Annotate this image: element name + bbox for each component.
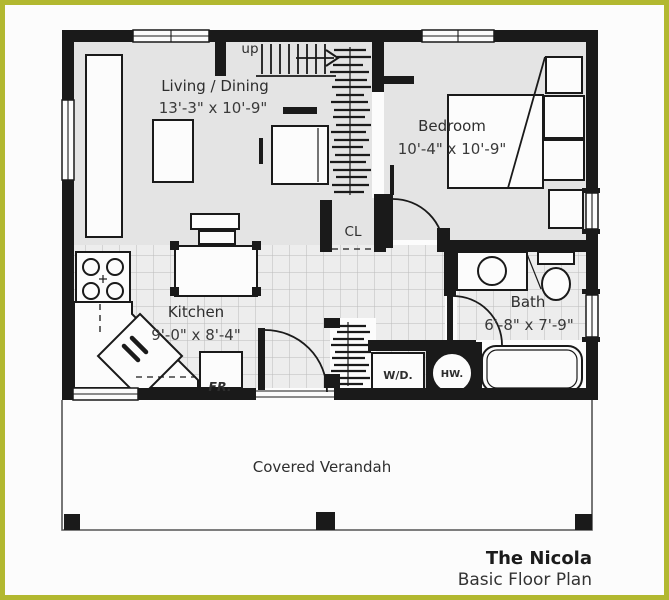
kitchen-label: Kitchen bbox=[168, 303, 224, 321]
bedroom-shelf bbox=[384, 76, 414, 84]
living-dining-dimensions: 13'-3" x 10'-9" bbox=[159, 99, 268, 117]
toilet-tank bbox=[538, 252, 574, 264]
verandah-post bbox=[316, 512, 335, 530]
toilet bbox=[542, 268, 570, 300]
washer-dryer-label: W/D. bbox=[383, 369, 412, 382]
bedroom-dimensions: 10'-4" x 10'-9" bbox=[398, 140, 507, 158]
wall-counter bbox=[86, 55, 122, 237]
burner-icon bbox=[83, 259, 99, 275]
floor-lamp bbox=[390, 165, 394, 195]
living-dining-label: Living / Dining bbox=[161, 77, 269, 95]
wall-shelf bbox=[283, 107, 317, 114]
closet-shelf bbox=[544, 96, 584, 138]
stair-wall bbox=[215, 42, 226, 76]
dining-chair bbox=[199, 231, 235, 244]
floor-plan-drawing: Living / Dining 13'-3" x 10'-9" Bedroom … bbox=[0, 0, 669, 600]
dining-table bbox=[175, 246, 257, 296]
hot-water-label: HW. bbox=[441, 369, 463, 380]
verandah-label: Covered Verandah bbox=[253, 458, 392, 476]
bathtub bbox=[482, 346, 582, 392]
plan-title: The Nicola bbox=[486, 548, 592, 569]
plan-subtitle: Basic Floor Plan bbox=[458, 570, 592, 590]
bedroom-wall bbox=[372, 42, 384, 92]
closet-wall-right bbox=[374, 194, 386, 252]
burner-icon bbox=[107, 283, 123, 299]
exterior-wall-left bbox=[62, 30, 74, 400]
verandah-post bbox=[64, 514, 80, 530]
bath-wall-left bbox=[444, 252, 456, 296]
closet-wall-left bbox=[320, 200, 332, 252]
bath-bedroom-wall bbox=[437, 240, 586, 252]
closet-shelf bbox=[546, 57, 582, 93]
cabinet bbox=[191, 214, 239, 229]
verandah-post bbox=[575, 514, 592, 530]
bedroom-label: Bedroom bbox=[418, 117, 486, 135]
closet-label: CL bbox=[345, 224, 362, 240]
bath-door bbox=[447, 294, 453, 346]
entry-door bbox=[258, 328, 265, 390]
framed-floor-plan-image: Living / Dining 13'-3" x 10'-9" Bedroom … bbox=[0, 0, 669, 600]
bath-dimensions: 6'-8" x 7'-9" bbox=[484, 316, 573, 334]
bathroom-sink bbox=[478, 257, 506, 285]
floor-lamp bbox=[259, 138, 263, 164]
fridge-label: FR. bbox=[208, 379, 231, 394]
closet-shelf bbox=[549, 190, 583, 228]
title-block: The Nicola Basic Floor Plan bbox=[458, 548, 592, 590]
bath-label: Bath bbox=[511, 293, 546, 311]
coffee-table bbox=[153, 120, 193, 182]
burner-icon bbox=[83, 283, 99, 299]
bedroom-door bbox=[386, 194, 393, 248]
burner-icon bbox=[107, 259, 123, 275]
stairs-up-label: up bbox=[241, 41, 258, 57]
sofa bbox=[272, 126, 328, 184]
closet-shelf bbox=[543, 140, 584, 180]
kitchen-dimensions: 9'-0" x 8'-4" bbox=[151, 326, 240, 344]
